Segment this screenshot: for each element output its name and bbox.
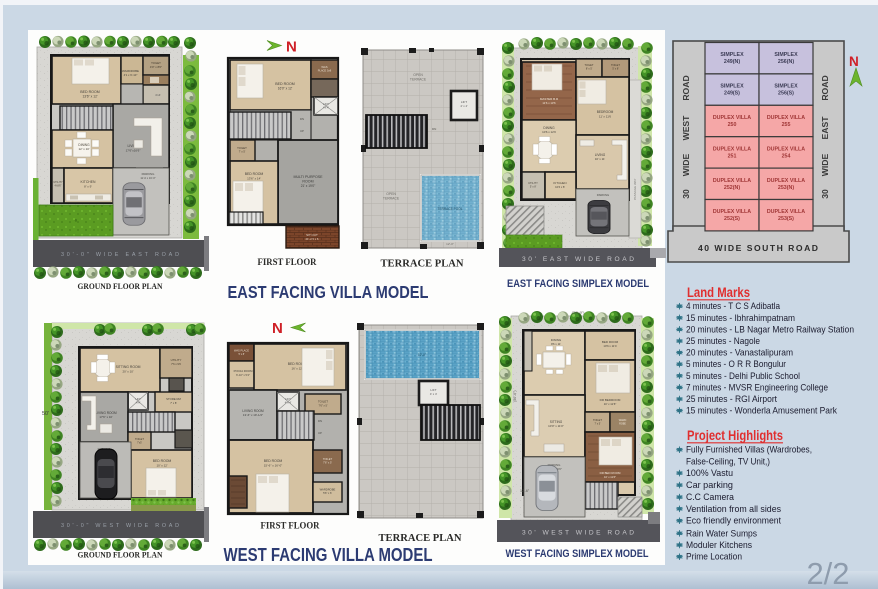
svg-text:DUPLEX VILLA: DUPLEX VILLA bbox=[767, 115, 805, 121]
svg-text:UP: UP bbox=[300, 129, 304, 133]
svg-text:13'6" x 12': 13'6" x 12' bbox=[82, 95, 97, 99]
svg-text:SIMPLEX: SIMPLEX bbox=[720, 52, 744, 58]
svg-text:TERRACE PLAN: TERRACE PLAN bbox=[379, 533, 462, 544]
svg-text:5' x 8': 5' x 8' bbox=[530, 186, 537, 189]
svg-text:10' x 11'6": 10' x 11'6" bbox=[604, 402, 617, 406]
svg-text:4 minutes - T C S Adibatla: 4 minutes - T C S Adibatla bbox=[686, 301, 781, 311]
svg-text:253(N): 253(N) bbox=[778, 185, 794, 191]
svg-text:C.C Camera: C.C Camera bbox=[686, 492, 735, 502]
svg-text:DUPLEX VILLA: DUPLEX VILLA bbox=[713, 115, 751, 121]
svg-text:12'-6": 12'-6" bbox=[520, 489, 530, 493]
svg-text:LIFT: LIFT bbox=[135, 397, 141, 401]
svg-text:Rain Water Sumps: Rain Water Sumps bbox=[686, 528, 757, 538]
svg-text:N: N bbox=[272, 320, 283, 337]
svg-text:8' x 9': 8' x 9' bbox=[84, 185, 92, 189]
svg-text:256(N): 256(N) bbox=[778, 59, 794, 65]
svg-text:ROAD: ROAD bbox=[681, 75, 691, 100]
svg-text:WAS: WAS bbox=[321, 65, 327, 69]
svg-text:TOILET: TOILET bbox=[237, 146, 247, 150]
svg-text:SITTING ROOM: SITTING ROOM bbox=[116, 365, 141, 369]
svg-text:20 minutes - Vanastalipuram: 20 minutes - Vanastalipuram bbox=[686, 348, 793, 358]
svg-text:DN: DN bbox=[300, 117, 304, 121]
svg-text:TOILET: TOILET bbox=[135, 437, 144, 441]
svg-text:FIRST FLOOR: FIRST FLOOR bbox=[258, 257, 318, 268]
svg-text:253(S): 253(S) bbox=[778, 216, 794, 222]
svg-text:LIFT: LIFT bbox=[323, 102, 329, 106]
svg-text:PARKING: PARKING bbox=[142, 172, 156, 176]
svg-text:16' x 12': 16' x 12' bbox=[292, 367, 303, 371]
svg-text:4'1 x 6'-10": 4'1 x 6'-10" bbox=[124, 73, 138, 77]
svg-text:ROOM: ROOM bbox=[302, 180, 313, 184]
svg-text:WEST: WEST bbox=[681, 115, 691, 141]
svg-text:Project Highlights: Project Highlights bbox=[687, 428, 783, 443]
svg-text:4'0" x 8'0": 4'0" x 8'0" bbox=[150, 65, 162, 69]
svg-text:KITCHEN: KITCHEN bbox=[553, 181, 566, 185]
svg-text:DN: DN bbox=[318, 419, 322, 423]
svg-text:ROAD: ROAD bbox=[820, 75, 830, 100]
svg-text:SIMPLEX: SIMPLEX bbox=[720, 84, 744, 90]
svg-text:16' x 11': 16' x 11' bbox=[595, 157, 606, 161]
svg-text:5' x 8': 5' x 8' bbox=[612, 68, 619, 71]
svg-text:15 minutes - Wonderla Amusemen: 15 minutes - Wonderla Amusement Park bbox=[686, 406, 837, 416]
svg-text:SIMPLEX: SIMPLEX bbox=[774, 52, 798, 58]
svg-text:6'-10" x 5'4": 6'-10" x 5'4" bbox=[236, 373, 250, 377]
svg-text:20 minutes - LB Nagar Metro Ra: 20 minutes - LB Nagar Metro Railway Stat… bbox=[686, 324, 854, 334]
svg-text:7'6" x 5': 7'6" x 5' bbox=[323, 462, 332, 465]
svg-text:7'x5': 7'x5' bbox=[137, 442, 142, 445]
svg-text:10' x 12': 10' x 12' bbox=[157, 464, 168, 468]
svg-text:5'6" x 6': 5'6" x 6' bbox=[323, 492, 332, 495]
svg-text:4'x 4': 4'x 4' bbox=[323, 106, 329, 110]
svg-text:21' x 19'0": 21' x 19'0" bbox=[301, 184, 316, 188]
svg-text:WEST FACING VILLA MODEL: WEST FACING VILLA MODEL bbox=[224, 544, 433, 565]
svg-text:(50'-0"): (50'-0") bbox=[513, 390, 517, 402]
svg-text:7' x 5': 7' x 5' bbox=[594, 423, 601, 426]
svg-text:252(N): 252(N) bbox=[724, 185, 740, 191]
svg-text:(29'-9"): (29'-9") bbox=[572, 310, 586, 315]
svg-text:25 minutes - Nagole: 25 minutes - Nagole bbox=[686, 336, 760, 346]
svg-text:7' x 8': 7' x 8' bbox=[170, 401, 177, 405]
svg-text:DUPLEX VILLA: DUPLEX VILLA bbox=[767, 147, 805, 153]
svg-text:11'6 x 13'6: 11'6 x 13'6 bbox=[542, 101, 556, 105]
svg-text:4'x4': 4'x4' bbox=[155, 93, 161, 97]
svg-text:7'6" x 5': 7'6" x 5' bbox=[319, 404, 328, 408]
svg-text:10'6 x 12'0: 10'6 x 12'0 bbox=[542, 130, 556, 134]
svg-text:5 minutes - O R R Bongulur: 5 minutes - O R R Bongulur bbox=[686, 359, 786, 369]
svg-text:12'-0": 12'-0" bbox=[446, 242, 454, 246]
svg-text:OPEN: OPEN bbox=[386, 192, 396, 196]
svg-text:DUPLEX VILLA: DUPLEX VILLA bbox=[767, 178, 805, 184]
svg-text:DUPLEX VILLA: DUPLEX VILLA bbox=[713, 209, 751, 215]
svg-text:21'-2.5 x 6: 21'-2.5 x 6 bbox=[306, 237, 319, 241]
svg-text:4'x9'6": 4'x9'6" bbox=[55, 185, 62, 188]
svg-text:POOJA ROOM: POOJA ROOM bbox=[234, 369, 253, 373]
svg-text:EAST FACING VILLA MODEL: EAST FACING VILLA MODEL bbox=[228, 282, 429, 302]
svg-text:249(N): 249(N) bbox=[724, 59, 740, 65]
svg-text:TERRACE PLAN: TERRACE PLAN bbox=[381, 259, 464, 270]
svg-text:WIDE: WIDE bbox=[681, 154, 691, 177]
svg-text:TERRACE: TERRACE bbox=[410, 78, 427, 82]
svg-text:7 minutes - MVSR Engineering C: 7 minutes - MVSR Engineering College bbox=[686, 382, 828, 392]
svg-text:GROUND FLOOR PLAN: GROUND FLOOR PLAN bbox=[78, 550, 164, 560]
svg-text:SIMPLEX: SIMPLEX bbox=[774, 84, 798, 90]
svg-text:DN: DN bbox=[432, 127, 436, 131]
svg-text:WEST FACING SIMPLEX MODEL: WEST FACING SIMPLEX MODEL bbox=[506, 548, 649, 560]
svg-text:ROBE: ROBE bbox=[619, 423, 626, 426]
svg-text:11'-0 x 16'-0": 11'-0 x 16'-0" bbox=[140, 176, 155, 180]
svg-text:DR BED ROOM: DR BED ROOM bbox=[600, 471, 621, 475]
svg-text:Prime Location: Prime Location bbox=[686, 552, 742, 562]
svg-text:PLACE 5x8: PLACE 5x8 bbox=[318, 69, 332, 73]
svg-text:Eco friendly environment: Eco friendly environment bbox=[686, 516, 781, 526]
svg-text:17'6"x16'6": 17'6"x16'6" bbox=[126, 149, 141, 153]
svg-text:TOILET: TOILET bbox=[611, 63, 620, 67]
svg-text:UP: UP bbox=[318, 431, 322, 435]
svg-text:BED ROOM: BED ROOM bbox=[80, 90, 100, 94]
svg-text:BED ROOM: BED ROOM bbox=[275, 82, 295, 86]
svg-text:30: 30 bbox=[681, 189, 691, 199]
svg-text:TERRACE: TERRACE bbox=[383, 197, 400, 201]
svg-text:STORE RM: STORE RM bbox=[166, 397, 181, 401]
svg-text:PASSAGE WAY: PASSAGE WAY bbox=[633, 179, 637, 200]
svg-text:2/2: 2/2 bbox=[806, 556, 849, 589]
svg-text:UTILITY: UTILITY bbox=[528, 181, 538, 185]
svg-text:252(S): 252(S) bbox=[724, 216, 740, 222]
svg-text:10'6 x 11'0: 10'6 x 11'0 bbox=[603, 344, 617, 348]
svg-text:DUPLEX VILLA: DUPLEX VILLA bbox=[713, 178, 751, 184]
svg-text:250: 250 bbox=[728, 122, 737, 128]
svg-text:LIFT: LIFT bbox=[285, 397, 291, 401]
svg-text:40 WIDE SOUTH ROAD: 40 WIDE SOUTH ROAD bbox=[698, 243, 818, 253]
svg-text:WAS PLACE: WAS PLACE bbox=[234, 349, 249, 353]
svg-text:EAST FACING SIMPLEX MODEL: EAST FACING SIMPLEX MODEL bbox=[507, 278, 649, 290]
svg-text:5' x 8': 5' x 8' bbox=[238, 353, 245, 356]
svg-text:30' EAST WIDE ROAD: 30' EAST WIDE ROAD bbox=[522, 256, 634, 263]
svg-text:100% Vastu: 100% Vastu bbox=[686, 468, 733, 478]
svg-text:PARKING: PARKING bbox=[597, 193, 609, 197]
svg-text:30: 30 bbox=[820, 189, 830, 199]
svg-text:OPEN: OPEN bbox=[413, 73, 423, 77]
svg-text:UTILITY: UTILITY bbox=[171, 358, 182, 362]
svg-text:4' x 4': 4' x 4' bbox=[285, 401, 292, 405]
svg-text:15 minutes - Ibhrahimpatnam: 15 minutes - Ibhrahimpatnam bbox=[686, 313, 795, 323]
svg-text:Moduler Kitchens: Moduler Kitchens bbox=[686, 540, 752, 550]
svg-text:BED ROOM: BED ROOM bbox=[245, 172, 264, 176]
svg-text:16'0" x 12': 16'0" x 12' bbox=[278, 87, 293, 91]
svg-text:N: N bbox=[286, 39, 297, 56]
svg-text:BED ROOM: BED ROOM bbox=[264, 459, 283, 463]
svg-text:N: N bbox=[849, 54, 859, 69]
svg-text:4'x4': 4'x4' bbox=[136, 402, 141, 405]
svg-text:False-Ceiling, TV Unit,): False-Ceiling, TV Unit,) bbox=[686, 456, 770, 466]
svg-text:10'6 x 8': 10'6 x 8' bbox=[555, 185, 565, 189]
svg-text:9'6 x 11': 9'6 x 11' bbox=[551, 342, 562, 346]
svg-text:251: 251 bbox=[728, 154, 737, 160]
svg-text:4' x 4': 4' x 4' bbox=[460, 104, 468, 108]
svg-text:BEDROOM: BEDROOM bbox=[597, 110, 614, 114]
svg-text:TOILET: TOILET bbox=[584, 63, 593, 67]
svg-text:255: 255 bbox=[782, 122, 791, 128]
svg-text:Car parking: Car parking bbox=[686, 480, 733, 490]
svg-text:WARDROBE: WARDROBE bbox=[320, 488, 336, 492]
svg-text:4' x 4': 4' x 4' bbox=[430, 392, 438, 396]
svg-text:50': 50' bbox=[42, 411, 49, 417]
svg-text:17'6" x 16': 17'6" x 16' bbox=[99, 415, 113, 419]
svg-text:TERRACE POOL: TERRACE POOL bbox=[438, 207, 463, 211]
svg-text:7' x 5': 7' x 5' bbox=[239, 150, 246, 154]
svg-text:5 minutes - Delhi Public Schoo: 5 minutes - Delhi Public School bbox=[686, 371, 800, 381]
svg-text:30' WEST WIDE ROAD: 30' WEST WIDE ROAD bbox=[522, 530, 634, 537]
svg-text:20' x 10': 20' x 10' bbox=[123, 370, 134, 374]
svg-text:Ventilation from all sides: Ventilation from all sides bbox=[686, 504, 781, 514]
svg-text:EAST: EAST bbox=[820, 116, 830, 140]
svg-text:11' x 11'6: 11' x 11'6 bbox=[599, 115, 612, 119]
svg-text:8' x 5': 8' x 5' bbox=[586, 68, 593, 71]
svg-text:256(S): 256(S) bbox=[778, 91, 794, 97]
svg-text:249(S): 249(S) bbox=[724, 91, 740, 97]
svg-text:FIRST FLOOR: FIRST FLOOR bbox=[261, 521, 321, 532]
svg-text:7'6 x 9'6: 7'6 x 9'6 bbox=[171, 362, 181, 366]
svg-text:MULTI PURPOSE: MULTI PURPOSE bbox=[293, 175, 323, 179]
svg-text:TOILET: TOILET bbox=[593, 418, 602, 422]
svg-text:KITCHEN: KITCHEN bbox=[81, 180, 96, 184]
svg-text:13'-6" x 19'-1/2": 13'-6" x 19'-1/2" bbox=[243, 413, 263, 417]
svg-text:254: 254 bbox=[782, 154, 791, 160]
svg-text:BED ROOM: BED ROOM bbox=[153, 459, 172, 463]
svg-text:DUPLEX VILLA: DUPLEX VILLA bbox=[713, 147, 751, 153]
svg-text:12' x 10': 12' x 10' bbox=[79, 147, 90, 151]
svg-text:TOILET: TOILET bbox=[318, 400, 328, 404]
svg-text:15'-6" x 16'-0": 15'-6" x 16'-0" bbox=[264, 464, 282, 468]
svg-text:Land Marks: Land Marks bbox=[687, 285, 750, 300]
svg-text:10'0" x 11'0": 10'0" x 11'0" bbox=[548, 424, 564, 428]
svg-text:13'6" x 14': 13'6" x 14' bbox=[247, 177, 261, 181]
svg-text:TOILET: TOILET bbox=[323, 457, 333, 461]
svg-text:DUPLEX VILLA: DUPLEX VILLA bbox=[767, 209, 805, 215]
svg-text:12'-0": 12'-0" bbox=[418, 353, 426, 357]
svg-text:Fully Furnished Villas (Wardro: Fully Furnished Villas (Wardrobes, bbox=[686, 445, 812, 455]
svg-text:25 minutes - RGI Airport: 25 minutes - RGI Airport bbox=[686, 394, 777, 404]
svg-text:10' x 11'6": 10' x 11'6" bbox=[604, 475, 616, 479]
svg-text:WIDE: WIDE bbox=[820, 154, 830, 177]
svg-text:GROUND FLOOR PLAN: GROUND FLOOR PLAN bbox=[78, 281, 164, 291]
